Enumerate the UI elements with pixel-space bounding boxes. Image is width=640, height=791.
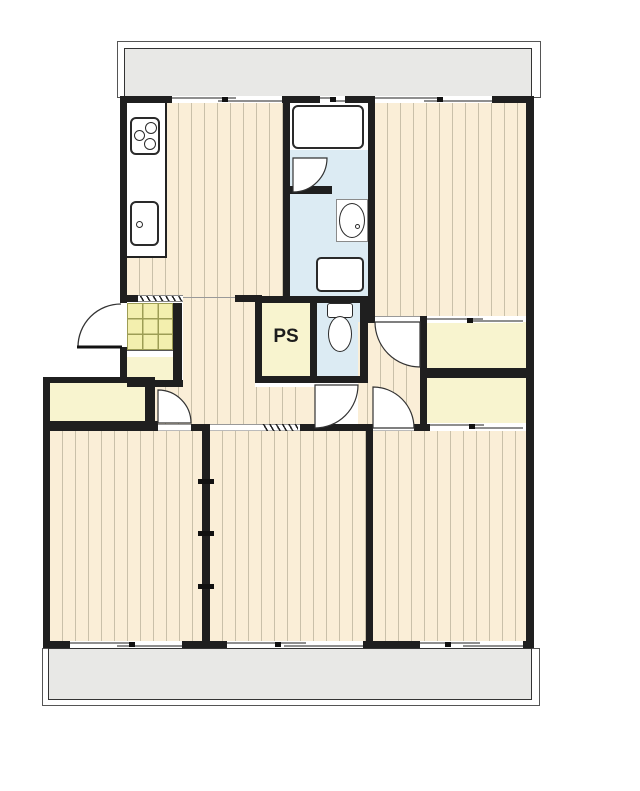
toilet-door-arc-icon	[315, 385, 358, 428]
bathroom-door-arc-icon	[293, 158, 327, 192]
pipe-space-label: PS	[262, 303, 310, 371]
entrance-door-arc-icon	[78, 304, 121, 347]
room-southeast-door-arc-icon	[373, 387, 414, 428]
floor-plan: PS	[0, 0, 640, 791]
door-swing-arcs	[0, 0, 640, 791]
room-southwest-door-arc-icon	[158, 390, 191, 423]
bedroom-door-arc-icon	[375, 322, 420, 367]
